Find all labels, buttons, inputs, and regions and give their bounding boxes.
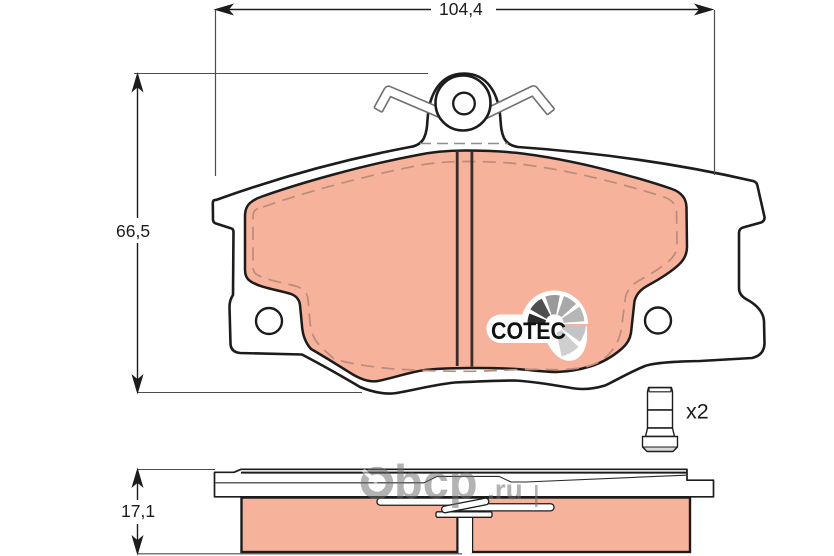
svg-text:x2: x2 bbox=[686, 400, 709, 424]
svg-text:66,5: 66,5 bbox=[116, 221, 150, 241]
svg-text:COTEC: COTEC bbox=[491, 318, 566, 345]
svg-text:17,1: 17,1 bbox=[121, 501, 155, 521]
svg-text:.ru: .ru bbox=[487, 474, 523, 505]
svg-text:104,4: 104,4 bbox=[439, 0, 483, 19]
svg-text:bcp: bcp bbox=[394, 455, 478, 508]
